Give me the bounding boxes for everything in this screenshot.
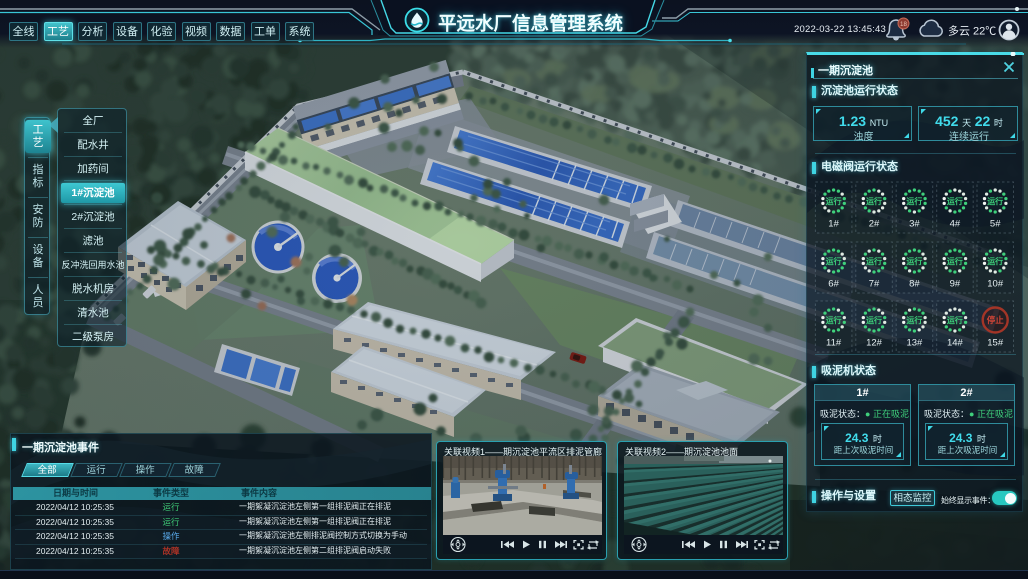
- svg-text:运行: 运行: [987, 196, 1003, 206]
- svg-text:13#: 13#: [906, 338, 923, 349]
- svg-text:7#: 7#: [869, 279, 880, 290]
- svg-text:运行: 运行: [826, 196, 842, 206]
- svg-text:运行: 运行: [866, 256, 882, 266]
- svg-text:运行: 运行: [906, 196, 922, 206]
- svg-text:8#: 8#: [909, 279, 920, 290]
- svg-text:3#: 3#: [909, 219, 920, 230]
- svg-text:14#: 14#: [947, 338, 964, 349]
- svg-text:运行: 运行: [947, 196, 963, 206]
- svg-text:5#: 5#: [990, 219, 1001, 230]
- svg-text:运行: 运行: [826, 315, 842, 325]
- svg-text:1#: 1#: [828, 219, 839, 230]
- svg-text:6#: 6#: [828, 279, 839, 290]
- svg-text:运行: 运行: [866, 196, 882, 206]
- svg-text:10#: 10#: [987, 279, 1004, 290]
- svg-text:运行: 运行: [947, 256, 963, 266]
- svg-text:9#: 9#: [950, 279, 961, 290]
- svg-text:停止: 停止: [987, 315, 1005, 325]
- svg-text:2#: 2#: [869, 219, 880, 230]
- svg-text:运行: 运行: [987, 256, 1003, 266]
- svg-text:11#: 11#: [826, 338, 842, 349]
- svg-text:运行: 运行: [906, 256, 922, 266]
- svg-text:4#: 4#: [950, 219, 961, 230]
- svg-text:15#: 15#: [987, 338, 1004, 349]
- svg-text:运行: 运行: [826, 256, 842, 266]
- svg-text:多云 22℃: 多云 22℃: [948, 24, 996, 38]
- svg-text:运行: 运行: [947, 315, 963, 325]
- svg-text:运行: 运行: [906, 315, 922, 325]
- svg-text:12#: 12#: [866, 338, 883, 349]
- svg-text:18: 18: [900, 21, 907, 28]
- svg-text:运行: 运行: [866, 315, 882, 325]
